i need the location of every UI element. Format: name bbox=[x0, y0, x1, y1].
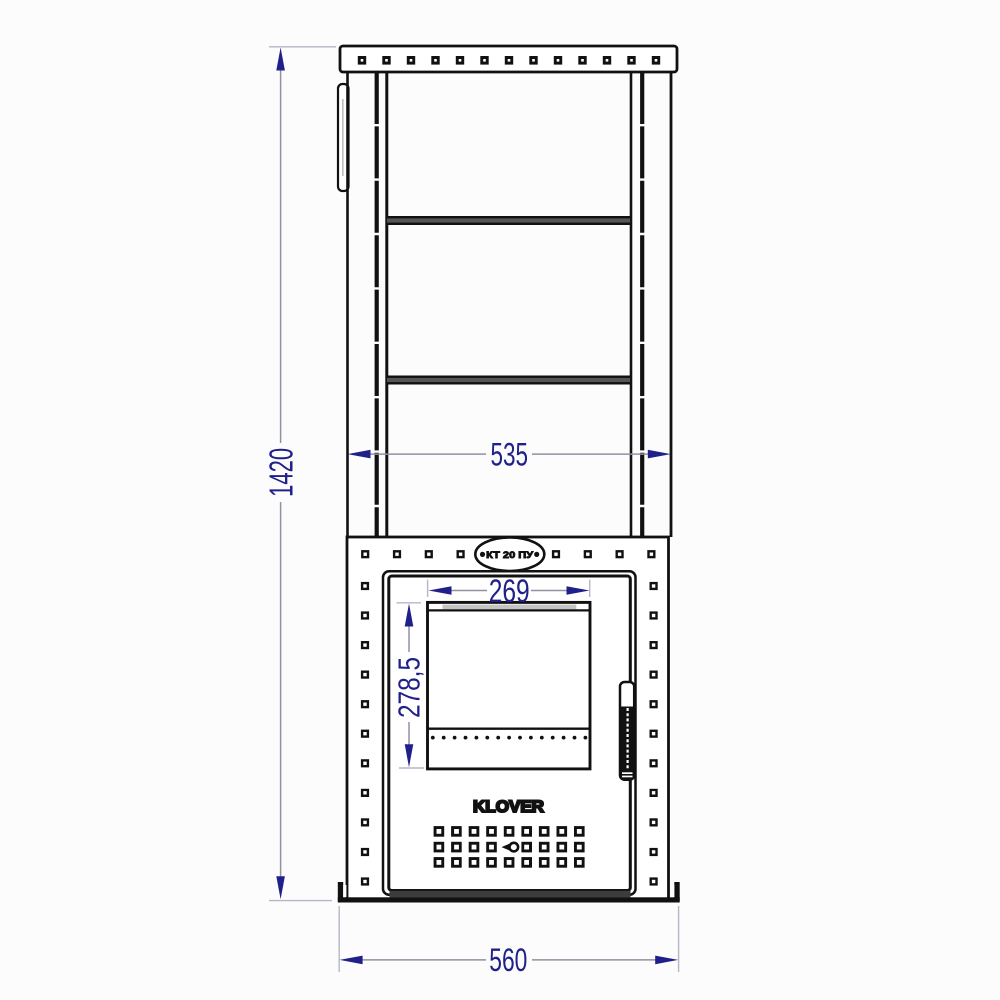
svg-text:1420: 1420 bbox=[262, 448, 299, 497]
svg-text:278,5: 278,5 bbox=[391, 657, 426, 718]
svg-text:560: 560 bbox=[489, 942, 527, 978]
svg-text:KLOVER: KLOVER bbox=[473, 798, 544, 816]
svg-text:269: 269 bbox=[489, 573, 530, 609]
svg-text:КТ 20 ПУ: КТ 20 ПУ bbox=[486, 550, 533, 561]
svg-text:535: 535 bbox=[491, 436, 529, 472]
